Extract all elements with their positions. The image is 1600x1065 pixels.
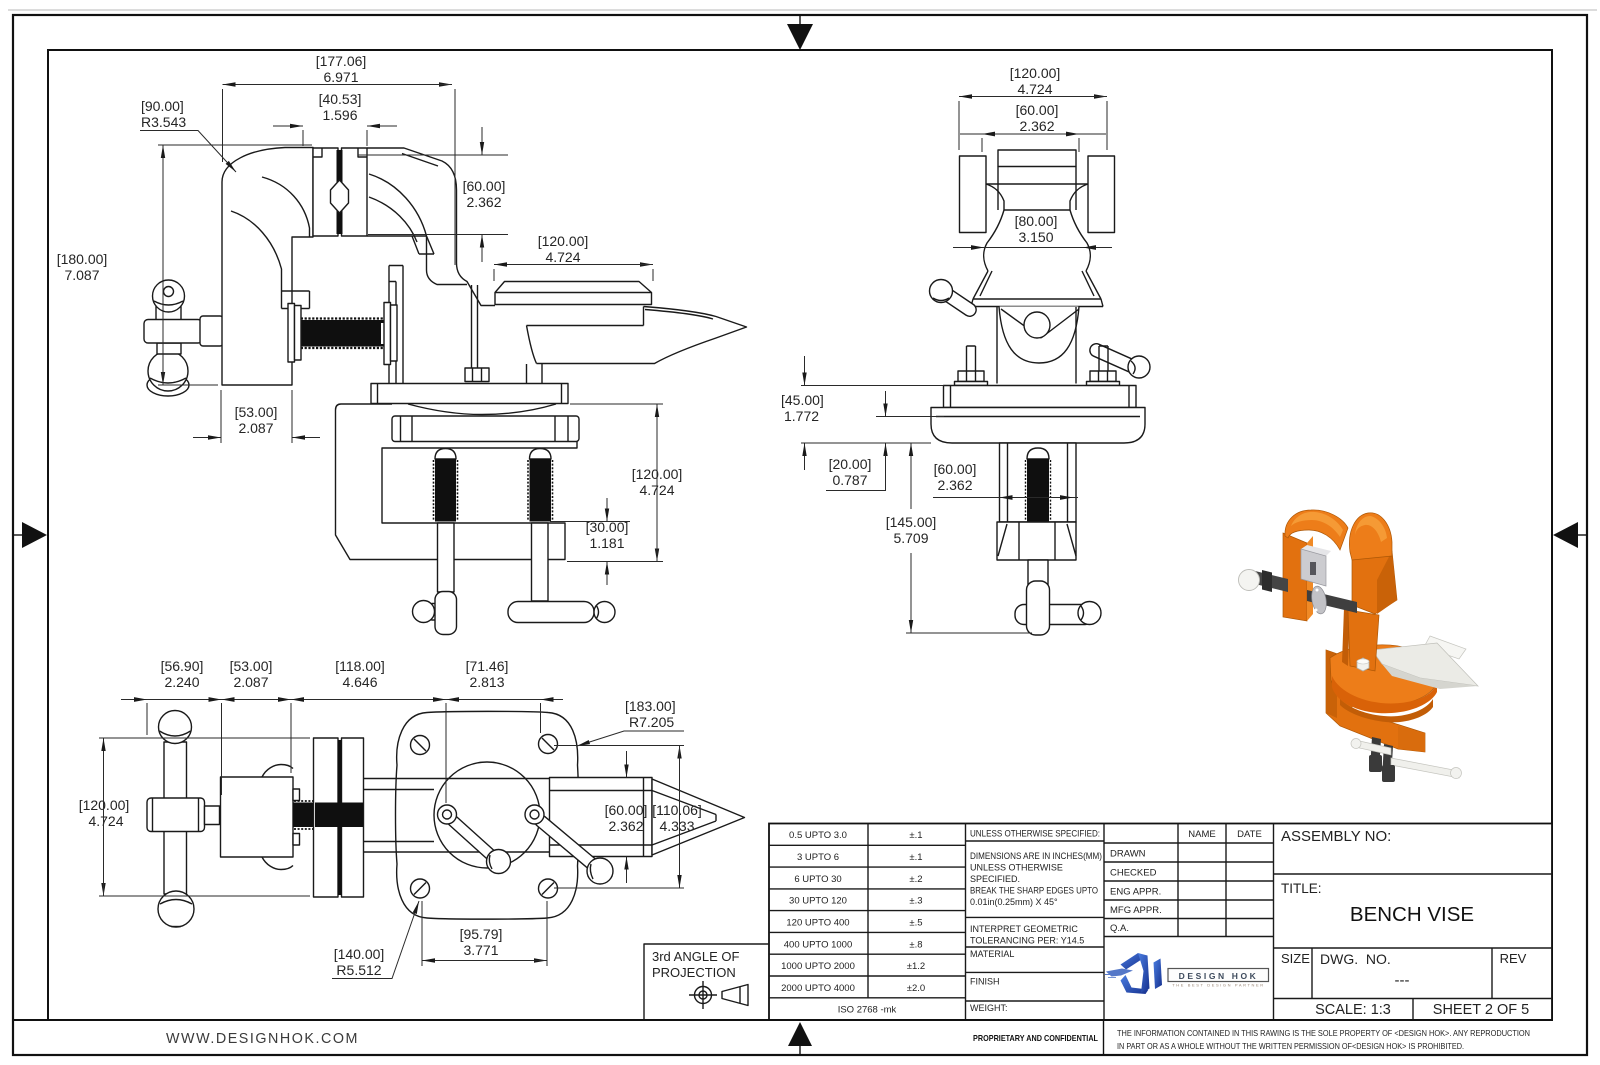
svg-text:4.333: 4.333: [659, 818, 694, 834]
svg-text:0.5 UPTO 3.0: 0.5 UPTO 3.0: [789, 830, 847, 841]
svg-text:5.709: 5.709: [893, 530, 928, 546]
svg-text:SIZE: SIZE: [1281, 951, 1310, 966]
svg-text:THE INFORMATION CONTAINED IN T: THE INFORMATION CONTAINED IN THIS RAWING…: [1117, 1028, 1530, 1038]
svg-text:2.240: 2.240: [164, 674, 199, 690]
svg-text:WWW.DESIGNHOK.COM: WWW.DESIGNHOK.COM: [166, 1030, 359, 1047]
svg-text:2000 UPTO 4000: 2000 UPTO 4000: [781, 983, 855, 994]
svg-text:TOLERANCING PER: Y14.5: TOLERANCING PER: Y14.5: [970, 936, 1084, 946]
svg-text:R7.205: R7.205: [629, 714, 674, 730]
svg-text:[110.06]: [110.06]: [652, 802, 702, 818]
svg-text:---: ---: [1395, 972, 1410, 989]
svg-text:THE BEST DESIGN PARTNER: THE BEST DESIGN PARTNER: [1172, 983, 1265, 988]
svg-text:4.724: 4.724: [545, 249, 580, 265]
svg-text:120 UPTO 400: 120 UPTO 400: [786, 918, 849, 929]
svg-text:[60.00]: [60.00]: [934, 461, 977, 477]
svg-text:[177.06]: [177.06]: [316, 53, 367, 69]
svg-text:[56.90]: [56.90]: [161, 658, 204, 674]
svg-text:IN PART OR AS A WHOLE WITHOUT: IN PART OR AS A WHOLE WITHOUT THE WRITTE…: [1117, 1041, 1464, 1051]
svg-text:MATERIAL: MATERIAL: [970, 949, 1014, 959]
svg-text:0.01in(0.25mm) X 45°: 0.01in(0.25mm) X 45°: [970, 897, 1058, 907]
svg-text:DESIGN HOK: DESIGN HOK: [1179, 971, 1259, 981]
svg-text:2.087: 2.087: [238, 420, 273, 436]
svg-text:2.362: 2.362: [937, 477, 972, 493]
svg-text:TITLE:: TITLE:: [1281, 881, 1322, 896]
svg-text:FINISH: FINISH: [970, 977, 1000, 987]
svg-text:SPECIFIED.: SPECIFIED.: [970, 874, 1020, 884]
svg-text:[140.00]: [140.00]: [334, 946, 385, 962]
svg-text:3 UPTO 6: 3 UPTO 6: [797, 852, 839, 863]
svg-text:[45.00]: [45.00]: [781, 392, 824, 408]
svg-text:BENCH VISE: BENCH VISE: [1350, 903, 1474, 926]
svg-text:[90.00]: [90.00]: [141, 98, 184, 114]
svg-text:2.362: 2.362: [608, 818, 643, 834]
svg-text:[40.53]: [40.53]: [319, 91, 362, 107]
svg-text:WEIGHT:: WEIGHT:: [970, 1003, 1008, 1013]
svg-text:R3.543: R3.543: [141, 114, 186, 130]
svg-text:2.362: 2.362: [466, 194, 501, 210]
svg-text:1000 UPTO 2000: 1000 UPTO 2000: [781, 961, 855, 972]
svg-text:3.150: 3.150: [1018, 229, 1053, 245]
svg-text:±.1: ±.1: [909, 830, 922, 841]
svg-text:R5.512: R5.512: [336, 962, 381, 978]
svg-text:SCALE: 1:3: SCALE: 1:3: [1315, 1002, 1391, 1018]
svg-text:DIMENSIONS ARE IN INCHES(MM): DIMENSIONS ARE IN INCHES(MM): [970, 851, 1102, 861]
svg-text:Q.A.: Q.A.: [1110, 923, 1129, 934]
svg-text:REV: REV: [1500, 951, 1527, 966]
svg-text:±.5: ±.5: [909, 918, 922, 929]
svg-text:[95.79]: [95.79]: [460, 926, 503, 942]
svg-text:ISO 2768 -mk: ISO 2768 -mk: [838, 1005, 897, 1016]
svg-text:[60.00]: [60.00]: [605, 802, 648, 818]
svg-text:[20.00]: [20.00]: [829, 456, 872, 472]
svg-text:DWG. NO.: DWG. NO.: [1320, 951, 1391, 967]
svg-text:PROPRIETARY AND CONFIDENTIAL: PROPRIETARY AND CONFIDENTIAL: [973, 1033, 1098, 1043]
svg-text:0.787: 0.787: [832, 472, 867, 488]
svg-text:4.646: 4.646: [342, 674, 377, 690]
svg-text:6.971: 6.971: [323, 69, 358, 85]
svg-text:[118.00]: [118.00]: [335, 658, 385, 674]
svg-text:1.596: 1.596: [322, 107, 357, 123]
svg-text:ASSEMBLY NO:: ASSEMBLY NO:: [1281, 828, 1391, 845]
svg-text:4.724: 4.724: [88, 813, 123, 829]
svg-text:±.8: ±.8: [909, 940, 922, 951]
svg-text:30 UPTO 120: 30 UPTO 120: [789, 896, 847, 907]
svg-text:[60.00]: [60.00]: [1016, 102, 1059, 118]
svg-text:ENG APPR.: ENG APPR.: [1110, 887, 1161, 898]
svg-text:±2.0: ±2.0: [907, 983, 925, 994]
svg-text:[53.00]: [53.00]: [230, 658, 273, 674]
svg-text:2.813: 2.813: [469, 674, 504, 690]
svg-text:CHECKED: CHECKED: [1110, 868, 1157, 879]
svg-text:[120.00]: [120.00]: [1010, 65, 1061, 81]
svg-text:±.3: ±.3: [909, 896, 922, 907]
svg-text:DATE: DATE: [1237, 829, 1262, 840]
svg-text:[145.00]: [145.00]: [886, 514, 937, 530]
svg-text:±.2: ±.2: [909, 874, 922, 885]
svg-text:7.087: 7.087: [64, 267, 99, 283]
svg-text:DRAWN: DRAWN: [1110, 849, 1146, 860]
svg-text:NAME: NAME: [1188, 829, 1215, 840]
svg-text:±1.2: ±1.2: [907, 961, 925, 972]
svg-text:4.724: 4.724: [1017, 81, 1052, 97]
svg-text:PROJECTION: PROJECTION: [652, 965, 736, 980]
svg-text:UNLESS OTHERWISE: UNLESS OTHERWISE: [970, 863, 1063, 873]
svg-text:[60.00]: [60.00]: [463, 178, 506, 194]
svg-text:6 UPTO 30: 6 UPTO 30: [794, 874, 841, 885]
svg-text:1.772: 1.772: [784, 408, 819, 424]
svg-text:[180.00]: [180.00]: [57, 251, 108, 267]
svg-text:3rd ANGLE OF: 3rd ANGLE OF: [652, 949, 739, 964]
svg-text:[183.00]: [183.00]: [625, 698, 676, 714]
svg-text:[71.46]: [71.46]: [466, 658, 509, 674]
svg-text:±.1: ±.1: [909, 852, 922, 863]
svg-text:BREAK THE SHARP EDGES UPTO: BREAK THE SHARP EDGES UPTO: [970, 886, 1098, 896]
svg-text:2.362: 2.362: [1019, 118, 1054, 134]
svg-text:[53.00]: [53.00]: [235, 404, 278, 420]
svg-text:[80.00]: [80.00]: [1015, 213, 1058, 229]
svg-text:400 UPTO 1000: 400 UPTO 1000: [784, 940, 852, 951]
svg-text:2.087: 2.087: [233, 674, 268, 690]
svg-text:3.771: 3.771: [463, 942, 498, 958]
svg-text:1.181: 1.181: [589, 535, 624, 551]
svg-text:MFG APPR.: MFG APPR.: [1110, 905, 1162, 916]
svg-text:SHEET 2 OF 5: SHEET 2 OF 5: [1433, 1002, 1529, 1018]
svg-text:[120.00]: [120.00]: [538, 233, 589, 249]
svg-text:UNLESS OTHERWISE SPECIFIED:: UNLESS OTHERWISE SPECIFIED:: [970, 829, 1100, 839]
svg-text:INTERPRET GEOMETRIC: INTERPRET GEOMETRIC: [970, 924, 1078, 934]
